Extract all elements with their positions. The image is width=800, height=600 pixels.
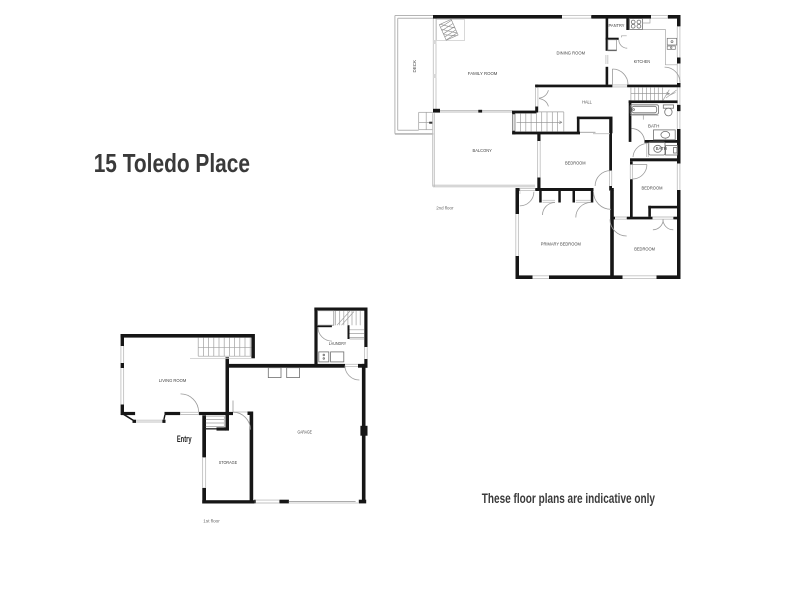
svg-text:DECK: DECK xyxy=(412,59,418,72)
svg-text:HALL: HALL xyxy=(582,100,592,106)
svg-text:15 Toledo Place: 15 Toledo Place xyxy=(94,148,250,178)
svg-text:These floor plans are indicati: These floor plans are indicative only xyxy=(482,490,655,506)
svg-text:LAUNDRY: LAUNDRY xyxy=(329,341,347,347)
svg-text:2nd floor: 2nd floor xyxy=(436,205,454,210)
svg-text:BATH: BATH xyxy=(648,124,660,130)
svg-text:GARAGE: GARAGE xyxy=(297,430,312,436)
svg-text:BEDROOM: BEDROOM xyxy=(642,185,663,191)
svg-text:PANTRY: PANTRY xyxy=(609,23,626,29)
svg-text:KITCHEN: KITCHEN xyxy=(634,59,651,65)
svg-text:BEDROOM: BEDROOM xyxy=(565,160,586,166)
svg-text:DINING ROOM: DINING ROOM xyxy=(557,51,586,57)
svg-text:LIVING ROOM: LIVING ROOM xyxy=(159,378,187,384)
svg-text:PRIMARY BEDROOM: PRIMARY BEDROOM xyxy=(541,241,581,247)
svg-text:Entry: Entry xyxy=(177,434,192,444)
svg-text:1st floor: 1st floor xyxy=(203,519,220,524)
svg-text:BEDROOM: BEDROOM xyxy=(634,246,655,252)
svg-text:FAMILY ROOM: FAMILY ROOM xyxy=(468,71,498,77)
svg-text:STORAGE: STORAGE xyxy=(219,460,237,466)
svg-text:BATH: BATH xyxy=(656,146,668,152)
svg-text:BALCONY: BALCONY xyxy=(473,148,493,154)
